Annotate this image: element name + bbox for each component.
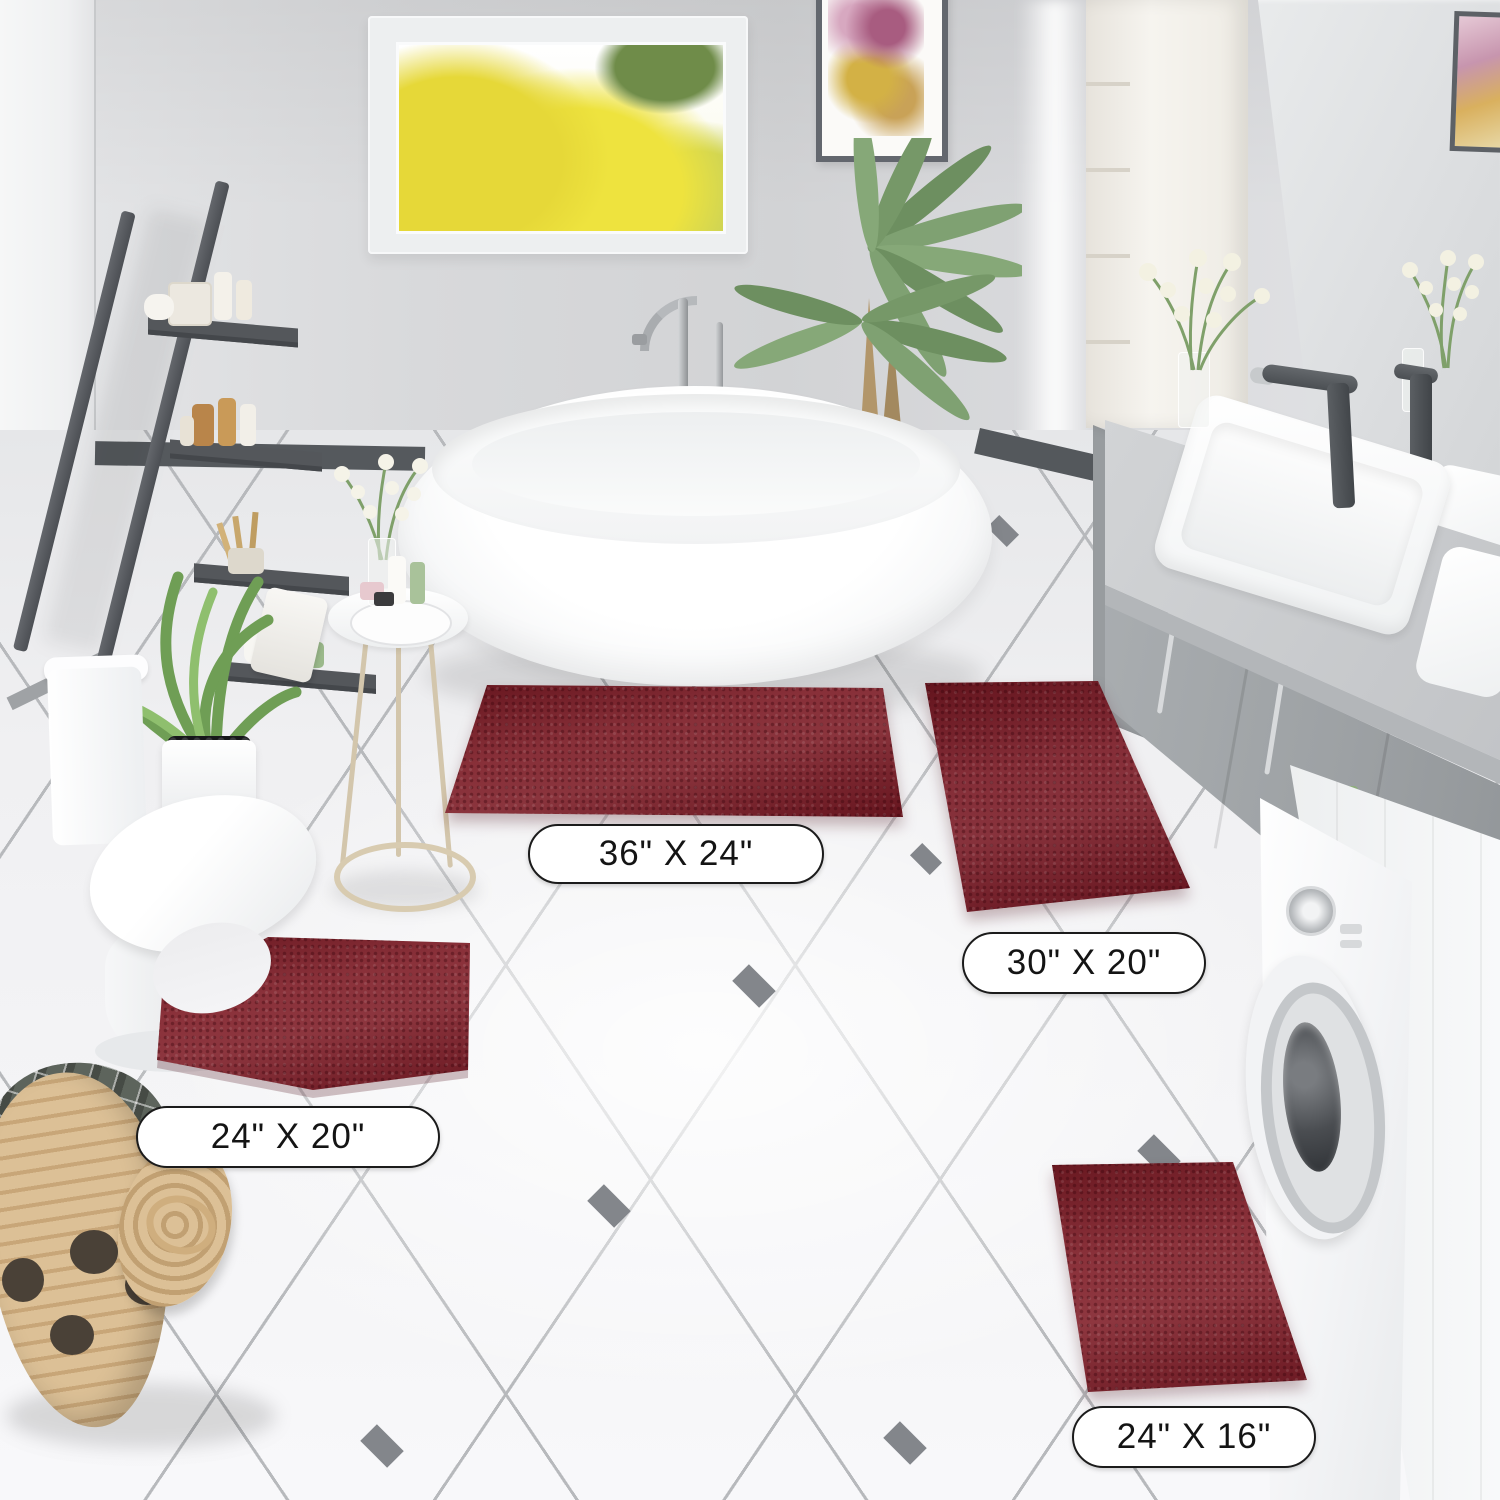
size-label-24x16: 24" X 16" bbox=[1072, 1406, 1316, 1468]
tub-faucet-head bbox=[632, 334, 647, 345]
basket-dot bbox=[50, 1315, 94, 1355]
basket-dot bbox=[2, 1258, 44, 1302]
dark-cosmetic bbox=[374, 592, 394, 606]
size-label-text: 30" X 20" bbox=[1007, 943, 1162, 983]
toiletry-bottle bbox=[240, 404, 256, 446]
palm-leaves bbox=[730, 138, 1022, 428]
size-label-24x20: 24" X 20" bbox=[136, 1106, 440, 1168]
window-view-trees bbox=[396, 42, 726, 234]
mirror-reflection-art bbox=[1450, 11, 1500, 153]
table-base-ring bbox=[334, 842, 476, 912]
washer-dial bbox=[1286, 886, 1336, 936]
washer-button bbox=[1340, 940, 1362, 948]
bath-rug-36x24-surface bbox=[430, 675, 920, 825]
rolled-towel bbox=[144, 294, 174, 320]
tub-faucet-riser bbox=[678, 298, 688, 398]
size-label-36x24: 36" X 24" bbox=[528, 824, 824, 884]
table-leg bbox=[396, 642, 401, 857]
bath-rug-24x16-surface bbox=[1040, 1150, 1330, 1405]
bathtub-interior bbox=[472, 412, 920, 516]
washer-button bbox=[1340, 924, 1362, 934]
table-tray bbox=[350, 600, 452, 646]
storage-jar bbox=[168, 282, 212, 326]
toiletry-bottle bbox=[236, 280, 252, 320]
bath-rug-36x24 bbox=[430, 675, 920, 825]
green-pump-bottle bbox=[410, 562, 425, 604]
size-label-30x20: 30" X 20" bbox=[962, 932, 1206, 994]
size-label-text: 24" X 16" bbox=[1117, 1417, 1272, 1457]
toilet-tank bbox=[47, 666, 147, 845]
amber-bottle bbox=[192, 404, 214, 446]
bath-rug-24x16 bbox=[1040, 1150, 1330, 1405]
wall-art-painting bbox=[828, 0, 924, 136]
white-flowers bbox=[1128, 238, 1278, 373]
amber-bottle bbox=[218, 398, 236, 446]
cabinet-shelves bbox=[1086, 0, 1130, 420]
toiletry-bottle bbox=[180, 416, 194, 446]
size-label-text: 36" X 24" bbox=[599, 834, 754, 874]
size-label-text: 24" X 20" bbox=[211, 1117, 366, 1157]
basket-dot bbox=[70, 1230, 118, 1274]
bath-rug-30x20 bbox=[915, 670, 1205, 920]
toiletry-bottle bbox=[214, 272, 232, 320]
bathroom-product-scene: 36" X 24" 30" X 20" 24" X 20" 24" X 16" bbox=[0, 0, 1500, 1500]
bath-rug-30x20-surface bbox=[915, 670, 1205, 920]
